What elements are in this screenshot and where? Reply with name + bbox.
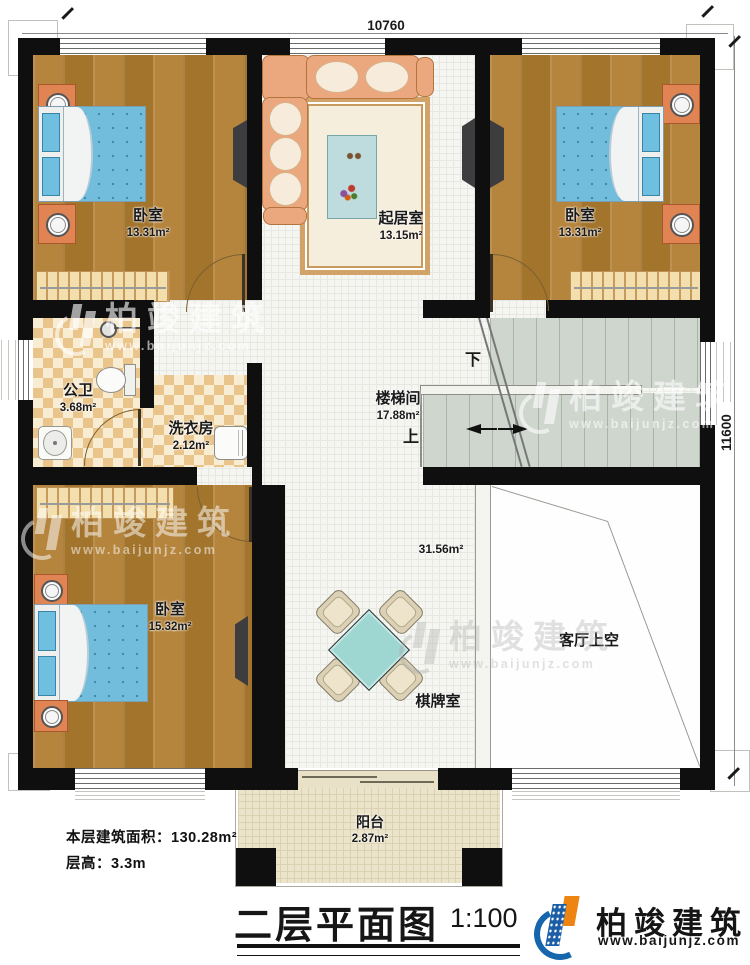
drawing-title: 二层平面图 bbox=[234, 894, 439, 949]
wall bbox=[700, 38, 715, 342]
wall bbox=[438, 768, 512, 790]
sofa-armrest bbox=[416, 57, 434, 97]
bed bbox=[556, 106, 664, 202]
table-lamp-icon bbox=[46, 213, 70, 237]
window bbox=[290, 38, 385, 55]
bed-sheet bbox=[609, 107, 638, 201]
bed-sheet bbox=[64, 107, 93, 201]
sofa-armrest bbox=[263, 207, 307, 225]
wall bbox=[475, 38, 490, 318]
wall bbox=[18, 300, 152, 318]
room-label-balcony: 阳台 2.87m² bbox=[320, 814, 420, 846]
sofa-corner bbox=[262, 55, 310, 101]
window bbox=[60, 38, 206, 55]
corner-marker bbox=[710, 750, 750, 792]
game-room-railing bbox=[475, 485, 491, 768]
room-label-bedroom-top-left: 卧室 13.31m² bbox=[98, 207, 198, 240]
window bbox=[75, 768, 205, 790]
room-area: 3.68m² bbox=[36, 401, 120, 415]
wardrobe bbox=[36, 271, 170, 302]
nightstand bbox=[662, 204, 700, 244]
room-name: 卧室 bbox=[133, 207, 163, 224]
door-leaf bbox=[138, 409, 141, 466]
wall bbox=[546, 300, 715, 318]
shower-head-icon bbox=[100, 321, 117, 338]
stair-arrow-shaft bbox=[498, 428, 513, 430]
bed-mattress bbox=[64, 107, 145, 201]
nightstand bbox=[34, 574, 68, 606]
wall bbox=[247, 363, 262, 467]
room-area-game: 31.56m² bbox=[396, 542, 486, 557]
cups-icon bbox=[346, 152, 362, 160]
living-void-area bbox=[489, 485, 700, 768]
room-label-laundry: 洗衣房 2.12m² bbox=[147, 420, 235, 453]
wall bbox=[18, 467, 197, 485]
stairs-down-label: 下 bbox=[458, 346, 488, 370]
wall bbox=[252, 467, 262, 485]
brand-website: www.baijunjz.com bbox=[598, 933, 740, 948]
room-label-bedroom-top-right: 卧室 13.31m² bbox=[530, 207, 630, 240]
room-area: 13.31m² bbox=[98, 226, 198, 240]
room-area: 17.88m² bbox=[350, 409, 446, 423]
door-leaf bbox=[490, 254, 493, 312]
wall bbox=[680, 768, 715, 790]
bed-headboard bbox=[35, 605, 60, 701]
stair-direction-arrow-up bbox=[513, 424, 528, 434]
room-area: 2.12m² bbox=[147, 439, 235, 453]
door-leaf bbox=[249, 487, 252, 542]
room-name: 楼梯间 bbox=[375, 390, 420, 407]
wall bbox=[18, 768, 75, 790]
room-label-living: 起居室 13.15m² bbox=[351, 210, 451, 243]
wall bbox=[423, 300, 490, 318]
room-name: 阳台 bbox=[356, 814, 384, 830]
tv-icon bbox=[235, 616, 248, 686]
wall bbox=[252, 485, 285, 768]
sofa-top bbox=[306, 55, 420, 99]
wardrobe bbox=[36, 487, 174, 519]
dimension-tick bbox=[61, 7, 73, 19]
room-name: 洗衣房 bbox=[168, 420, 213, 437]
dimension-tick bbox=[701, 5, 713, 17]
top-dimension: 10760 bbox=[350, 18, 422, 33]
room-name: 起居室 bbox=[378, 210, 423, 227]
tv-icon bbox=[462, 118, 475, 188]
floor-height-text: 层高：3.3m bbox=[66, 852, 146, 873]
wall bbox=[140, 318, 154, 408]
drawing-scale: 1:100 bbox=[450, 903, 518, 934]
wall bbox=[423, 467, 715, 485]
nightstand bbox=[38, 204, 76, 244]
room-label-void: 客厅上空 bbox=[536, 632, 642, 651]
wall bbox=[137, 300, 154, 318]
title-underline bbox=[237, 944, 520, 956]
right-dimension: 11600 bbox=[719, 402, 734, 464]
door-leaf bbox=[242, 254, 245, 312]
table-lamp-icon bbox=[670, 213, 694, 237]
bed-mattress bbox=[557, 107, 638, 201]
window bbox=[512, 768, 680, 790]
window-sill bbox=[75, 791, 205, 801]
window-sill bbox=[1, 340, 17, 400]
coffee-table bbox=[327, 135, 377, 219]
stairs-upper-flight bbox=[490, 318, 700, 388]
balcony-pillar bbox=[236, 848, 276, 886]
room-label-stairwell: 楼梯间 17.88m² bbox=[350, 390, 446, 423]
bed bbox=[38, 106, 146, 202]
wall bbox=[205, 768, 298, 790]
stair-direction-arrow-down bbox=[466, 424, 481, 434]
room-area: 2.87m² bbox=[320, 832, 420, 846]
room-name: 公卫 bbox=[63, 382, 93, 399]
balcony-pillar bbox=[462, 848, 502, 886]
bed-headboard bbox=[638, 107, 663, 201]
top-dimension-line bbox=[22, 33, 728, 34]
bed-headboard bbox=[39, 107, 64, 201]
stairs-lower-flight bbox=[423, 393, 700, 467]
wardrobe bbox=[570, 271, 702, 302]
room-area: 15.32m² bbox=[118, 620, 222, 634]
window bbox=[18, 340, 33, 400]
wall bbox=[18, 400, 33, 768]
tv-icon bbox=[233, 120, 247, 188]
nightstand bbox=[662, 84, 700, 124]
room-name: 棋牌室 bbox=[415, 693, 460, 710]
nightstand bbox=[34, 700, 68, 732]
brand-logo-icon bbox=[536, 894, 590, 954]
room-area: 13.15m² bbox=[351, 229, 451, 243]
room-label-game: 棋牌室 bbox=[391, 693, 485, 712]
room-label-bedroom-bottom: 卧室 15.32m² bbox=[118, 601, 222, 634]
bed-sheet bbox=[60, 605, 89, 701]
wall bbox=[247, 38, 262, 300]
stair-arrow-shaft bbox=[481, 428, 497, 430]
room-name: 卧室 bbox=[565, 207, 595, 224]
room-area: 31.56m² bbox=[419, 542, 464, 556]
room-label-bathroom: 公卫 3.68m² bbox=[36, 382, 120, 415]
table-lamp-icon bbox=[41, 580, 63, 602]
table-lamp-icon bbox=[670, 93, 694, 117]
room-name: 客厅上空 bbox=[559, 632, 619, 649]
window bbox=[522, 38, 660, 55]
table-lamp-icon bbox=[41, 706, 63, 728]
floor-plan-page: 10760 11600 bbox=[0, 0, 750, 965]
flower-decor-icon bbox=[336, 178, 362, 204]
tv-icon bbox=[490, 120, 504, 188]
room-area: 13.31m² bbox=[530, 226, 630, 240]
window-sill bbox=[512, 791, 680, 801]
window bbox=[700, 342, 715, 425]
sink-icon bbox=[38, 426, 72, 460]
right-dimension-line bbox=[734, 36, 735, 786]
stair-handrail bbox=[420, 385, 642, 395]
stairs-up-label: 上 bbox=[396, 423, 426, 447]
balcony-sliding-door bbox=[298, 770, 438, 788]
wall bbox=[18, 38, 33, 340]
sofa-left bbox=[262, 97, 308, 211]
room-name: 卧室 bbox=[155, 601, 185, 618]
floor-area-text: 本层建筑面积：130.28m² bbox=[66, 826, 237, 847]
